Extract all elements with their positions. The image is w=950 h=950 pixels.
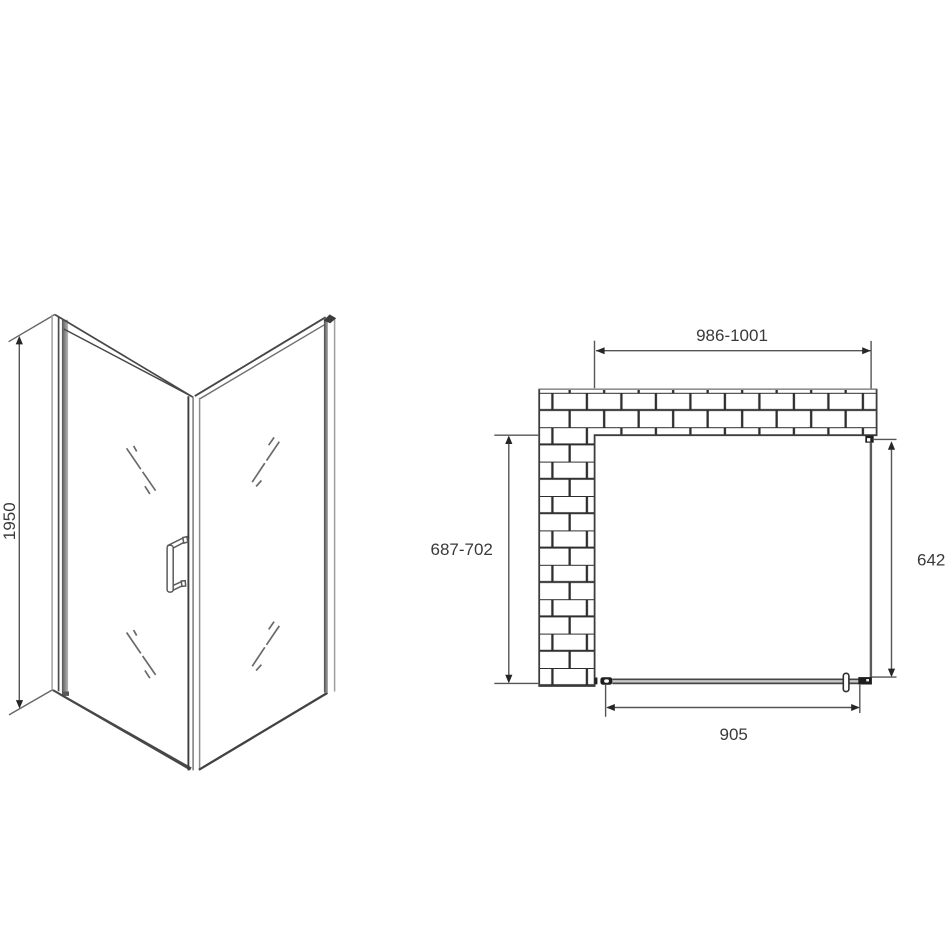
svg-text:1950: 1950	[0, 502, 19, 540]
svg-text:642: 642	[917, 551, 945, 570]
svg-text:687-702: 687-702	[431, 540, 493, 559]
svg-text:986-1001: 986-1001	[696, 326, 768, 345]
svg-text:905: 905	[720, 725, 748, 744]
